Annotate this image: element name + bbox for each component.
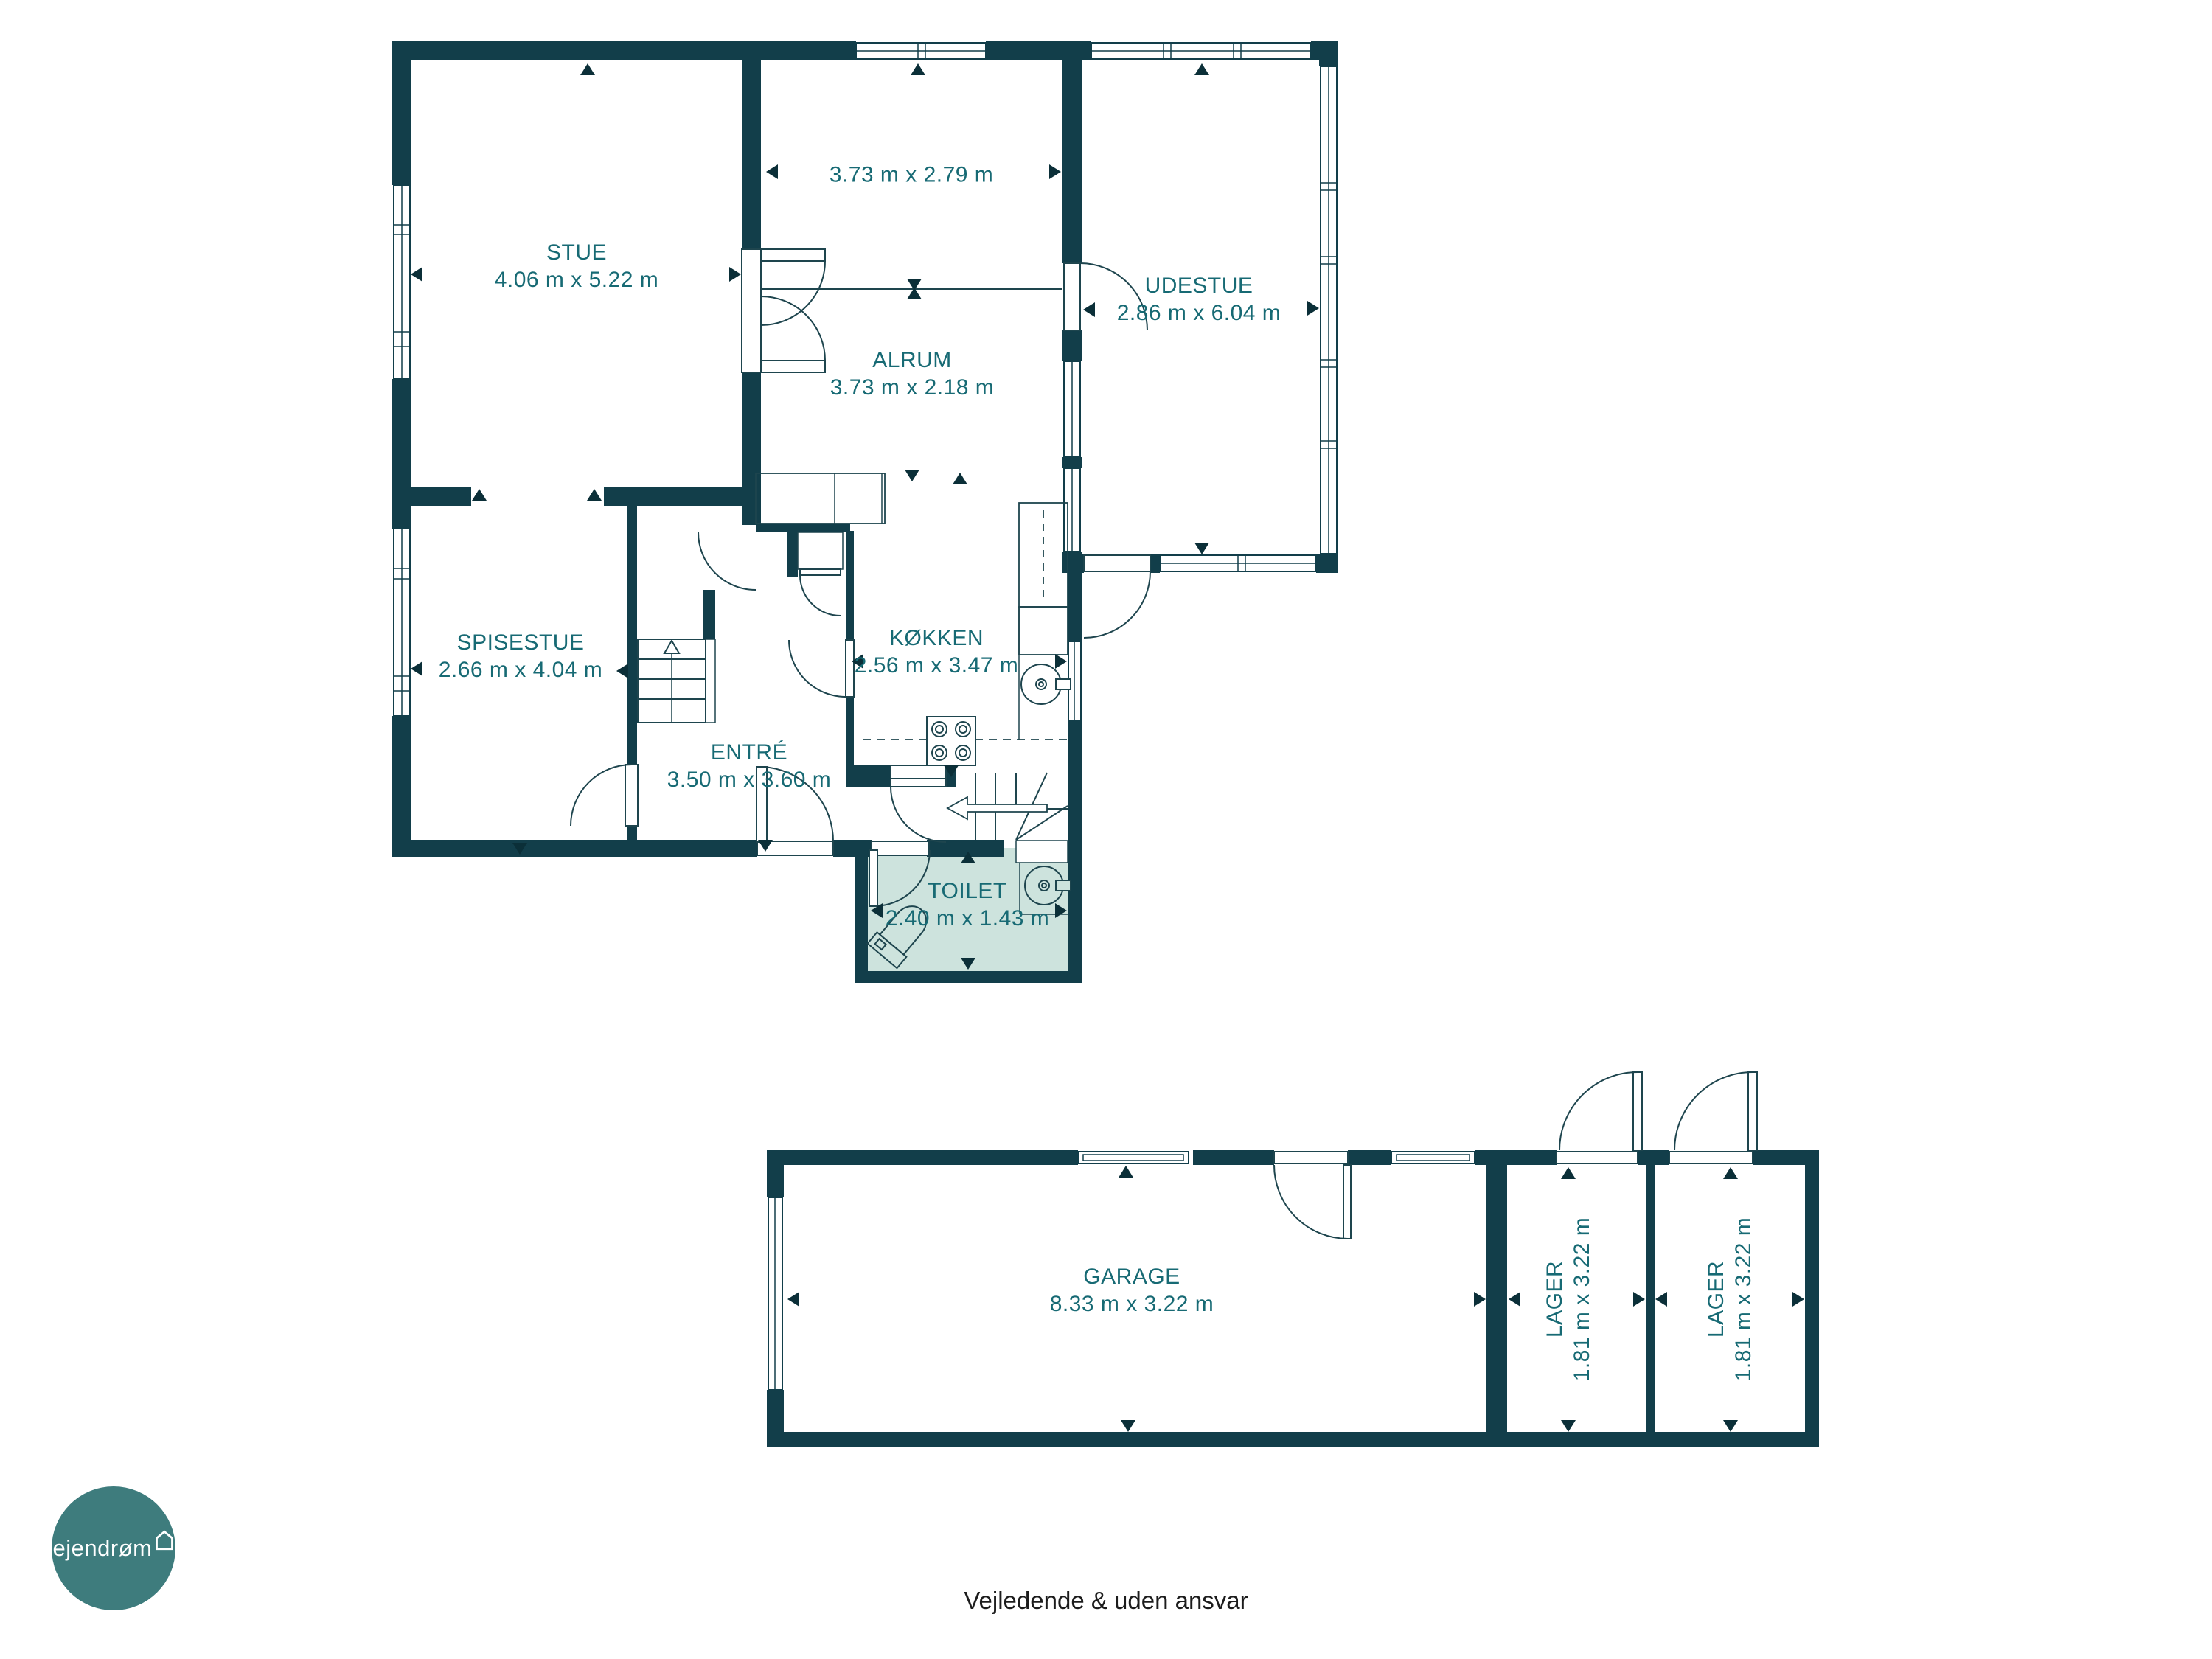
room-label-alrum: ALRUM 3.73 m x 2.18 m (830, 347, 995, 401)
room-dims: 2.86 m x 6.04 m (1117, 299, 1281, 327)
room-name: KØKKEN (855, 625, 1019, 652)
room-label-garage: GARAGE 8.33 m x 3.22 m (1050, 1263, 1214, 1318)
disclaimer-text: Vejledende & uden ansvar (0, 1587, 2212, 1615)
room-name: LAGER (1541, 1217, 1568, 1382)
room-label-toilet: TOILET 2.40 m x 1.43 m (886, 877, 1050, 932)
room-label-udestue: UDESTUE 2.86 m x 6.04 m (1117, 272, 1281, 327)
room-dims: 3.73 m x 2.18 m (830, 374, 995, 401)
room-dims: 2.40 m x 1.43 m (886, 905, 1050, 932)
room-dims: 8.33 m x 3.22 m (1050, 1290, 1214, 1318)
floorplan-page: STUE 4.06 m x 5.22 m 3.73 m x 2.79 m ALR… (0, 0, 2212, 1659)
room-name: LAGER (1703, 1217, 1730, 1382)
room-dims: 4.06 m x 5.22 m (495, 266, 659, 293)
floor-plan-drawing (0, 0, 2212, 1659)
logo-text: ejendrøm (53, 1535, 153, 1562)
room-label-stue: STUE 4.06 m x 5.22 m (495, 239, 659, 293)
room-label-lager-2: LAGER 1.81 m x 3.22 m (1703, 1217, 1757, 1382)
room-dims: 3.50 m x 3.60 m (667, 766, 832, 793)
room-name: STUE (495, 239, 659, 266)
room-name: GARAGE (1050, 1263, 1214, 1290)
room-dims: 1.81 m x 3.22 m (1730, 1217, 1757, 1382)
room-dims: 1.81 m x 3.22 m (1568, 1217, 1596, 1382)
kitchen-sink-icon (1021, 664, 1071, 704)
house-icon (155, 1530, 174, 1551)
room-label-kokken: KØKKEN 2.56 m x 3.47 m (855, 625, 1019, 679)
room-name: ENTRÉ (667, 739, 832, 766)
room-name: TOILET (886, 877, 1050, 905)
room-dims: 2.66 m x 4.04 m (439, 656, 603, 684)
room-dims: 2.56 m x 3.47 m (855, 652, 1019, 679)
room-dims-alrum-upper: 3.73 m x 2.79 m (829, 161, 994, 189)
room-name: SPISESTUE (439, 629, 603, 656)
room-label-lager-1: LAGER 1.81 m x 3.22 m (1541, 1217, 1596, 1382)
kitchen-fixtures (927, 664, 1071, 765)
stairs-up (638, 639, 715, 723)
room-label-spisestue: SPISESTUE 2.66 m x 4.04 m (439, 629, 603, 684)
room-dims: 3.73 m x 2.79 m (829, 161, 994, 189)
room-label-entre: ENTRÉ 3.50 m x 3.60 m (667, 739, 832, 793)
stove-icon (927, 717, 975, 765)
room-name: UDESTUE (1117, 272, 1281, 299)
room-name: ALRUM (830, 347, 995, 374)
